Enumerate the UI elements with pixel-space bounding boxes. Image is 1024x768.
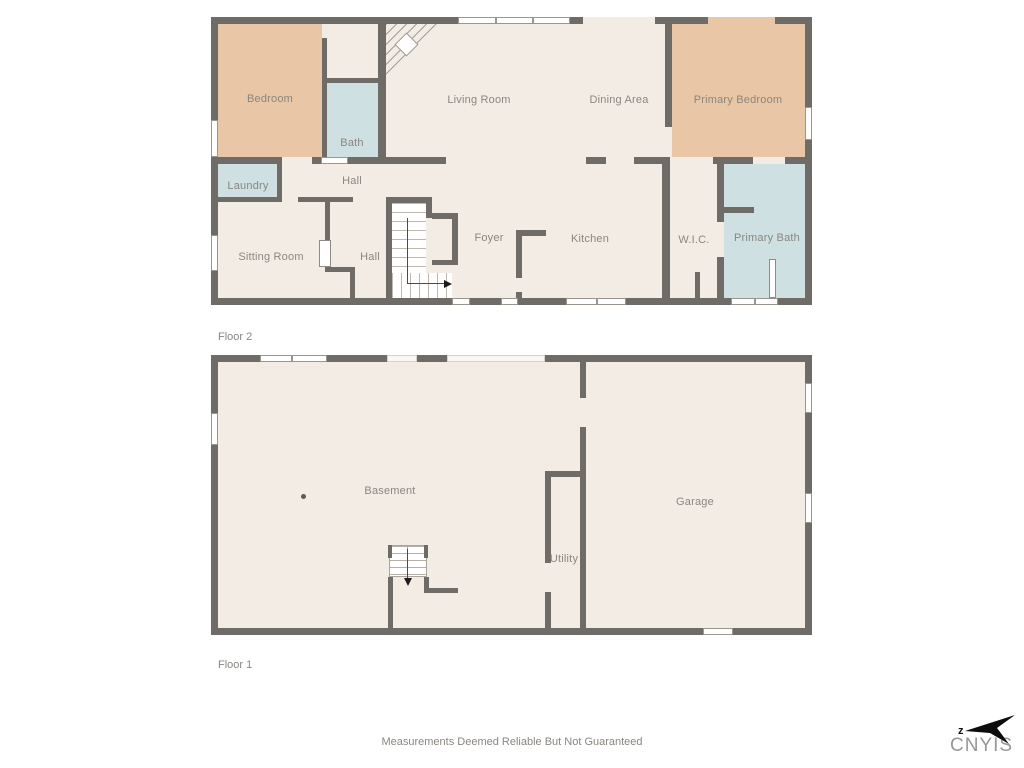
- room-label-basement: Basement: [364, 485, 415, 497]
- window: [755, 298, 778, 305]
- wall-segment: [417, 355, 447, 362]
- wall-segment: [655, 17, 708, 24]
- wall-segment: [218, 197, 282, 202]
- wall-segment: [724, 207, 754, 213]
- room-bedroom: [218, 24, 322, 157]
- window: [805, 493, 812, 523]
- stair-direction-arrow-right: [444, 280, 452, 288]
- wall-segment: [570, 17, 583, 24]
- window: [566, 298, 597, 305]
- room-label-primary-bedroom: Primary Bedroom: [694, 94, 783, 106]
- wall-segment: [586, 157, 606, 164]
- stair-arrow-line: [407, 283, 445, 284]
- wall-segment: [211, 355, 260, 362]
- wall-segment: [386, 157, 446, 164]
- wall-segment: [785, 157, 812, 164]
- room-label-bath: Bath: [340, 137, 363, 149]
- window: [533, 17, 570, 24]
- wall-segment: [211, 157, 218, 235]
- floor2-tag: Floor 2: [218, 331, 252, 343]
- stair-treads-lower: [392, 273, 452, 298]
- wall-segment: [432, 260, 458, 265]
- window: [292, 355, 327, 362]
- wall-segment: [805, 17, 812, 107]
- floor2-plan: Bedroom Bath Living Room Dining Area Pri…: [0, 0, 1024, 345]
- door-sill: [321, 157, 348, 164]
- room-label-kitchen: Kitchen: [571, 233, 609, 245]
- stair-treads-upper: [392, 203, 426, 273]
- wall-segment: [545, 477, 551, 563]
- wall-segment: [277, 164, 282, 197]
- wall-segment: [516, 236, 522, 278]
- room-label-laundry: Laundry: [227, 180, 268, 192]
- room-primary-bath: [724, 164, 805, 298]
- wall-segment: [805, 140, 812, 305]
- wall-segment: [805, 413, 812, 493]
- window: [260, 355, 292, 362]
- window: [211, 120, 218, 157]
- room-label-sitting-room: Sitting Room: [238, 251, 303, 263]
- room-label-primary-bath: Primary Bath: [734, 232, 800, 244]
- wall-opening: [447, 355, 545, 362]
- north-marker: z: [958, 725, 964, 737]
- door-sill: [452, 298, 470, 305]
- stair-direction-arrow-down: [404, 578, 412, 586]
- wall-segment: [388, 577, 393, 628]
- wall-segment: [322, 38, 327, 157]
- wall-segment: [211, 445, 218, 635]
- wall-opening: [387, 355, 417, 362]
- support-post-dot: [301, 494, 306, 499]
- window: [805, 383, 812, 413]
- wall-segment: [424, 545, 428, 558]
- wall-segment: [424, 588, 458, 593]
- window: [211, 413, 218, 445]
- wall-segment: [695, 272, 700, 298]
- room-label-foyer: Foyer: [474, 232, 503, 244]
- room-label-wic: W.I.C.: [678, 234, 709, 246]
- wall-segment: [211, 17, 218, 120]
- stair-arrow-line: [407, 218, 408, 284]
- wall-segment: [805, 523, 812, 635]
- wall-segment: [805, 355, 812, 383]
- wall-segment: [386, 197, 392, 298]
- wall-segment: [211, 355, 218, 413]
- window: [211, 235, 218, 271]
- room-label-bedroom: Bedroom: [247, 93, 293, 105]
- window: [496, 17, 533, 24]
- floor-plan-canvas: Bedroom Bath Living Room Dining Area Pri…: [0, 0, 1024, 768]
- window: [805, 107, 812, 140]
- room-label-utility: Utility: [550, 553, 578, 565]
- cnyis-logo: CNYIS z: [946, 712, 1024, 762]
- wall-segment: [378, 23, 386, 157]
- wall-segment: [634, 157, 670, 164]
- wall-segment: [325, 197, 330, 240]
- room-label-living-room: Living Room: [447, 94, 510, 106]
- window: [458, 17, 496, 24]
- room-label-hall-lower: Hall: [360, 251, 380, 263]
- wall-segment: [348, 157, 390, 164]
- wall-segment: [322, 78, 378, 83]
- room-label-dining-area: Dining Area: [589, 94, 648, 106]
- wall-segment: [327, 355, 387, 362]
- door-leaf: [319, 240, 331, 267]
- window: [731, 298, 755, 305]
- door-leaf: [769, 259, 776, 298]
- wall-segment: [211, 157, 282, 164]
- wall-segment: [452, 219, 458, 260]
- floor1-plan: Basement Utility Garage Floor 1: [0, 345, 1024, 680]
- wall-segment: [580, 362, 586, 398]
- door-sill: [501, 298, 518, 305]
- door-sill: [703, 628, 733, 635]
- disclaimer-text: Measurements Deemed Reliable But Not Gua…: [381, 736, 642, 748]
- room-primary-bedroom: [672, 17, 805, 157]
- room-label-hall-upper: Hall: [342, 175, 362, 187]
- floor1-tag: Floor 1: [218, 659, 252, 671]
- stair-arrow-line: [407, 549, 408, 578]
- wall-segment: [662, 164, 670, 298]
- wall-segment: [545, 355, 812, 362]
- wall-segment: [665, 23, 672, 127]
- wall-segment: [350, 267, 355, 298]
- wall-segment: [388, 545, 392, 558]
- wall-segment: [580, 427, 586, 628]
- wall-segment: [717, 164, 724, 222]
- stair-treads-basement: [389, 545, 427, 577]
- north-arrow-icon: [964, 713, 1018, 745]
- wall-segment: [717, 257, 724, 298]
- wall-segment: [545, 471, 586, 477]
- wall-segment: [545, 592, 551, 628]
- room-label-garage: Garage: [676, 496, 714, 508]
- wall-segment: [713, 157, 753, 164]
- window: [597, 298, 626, 305]
- wall-segment: [211, 17, 458, 24]
